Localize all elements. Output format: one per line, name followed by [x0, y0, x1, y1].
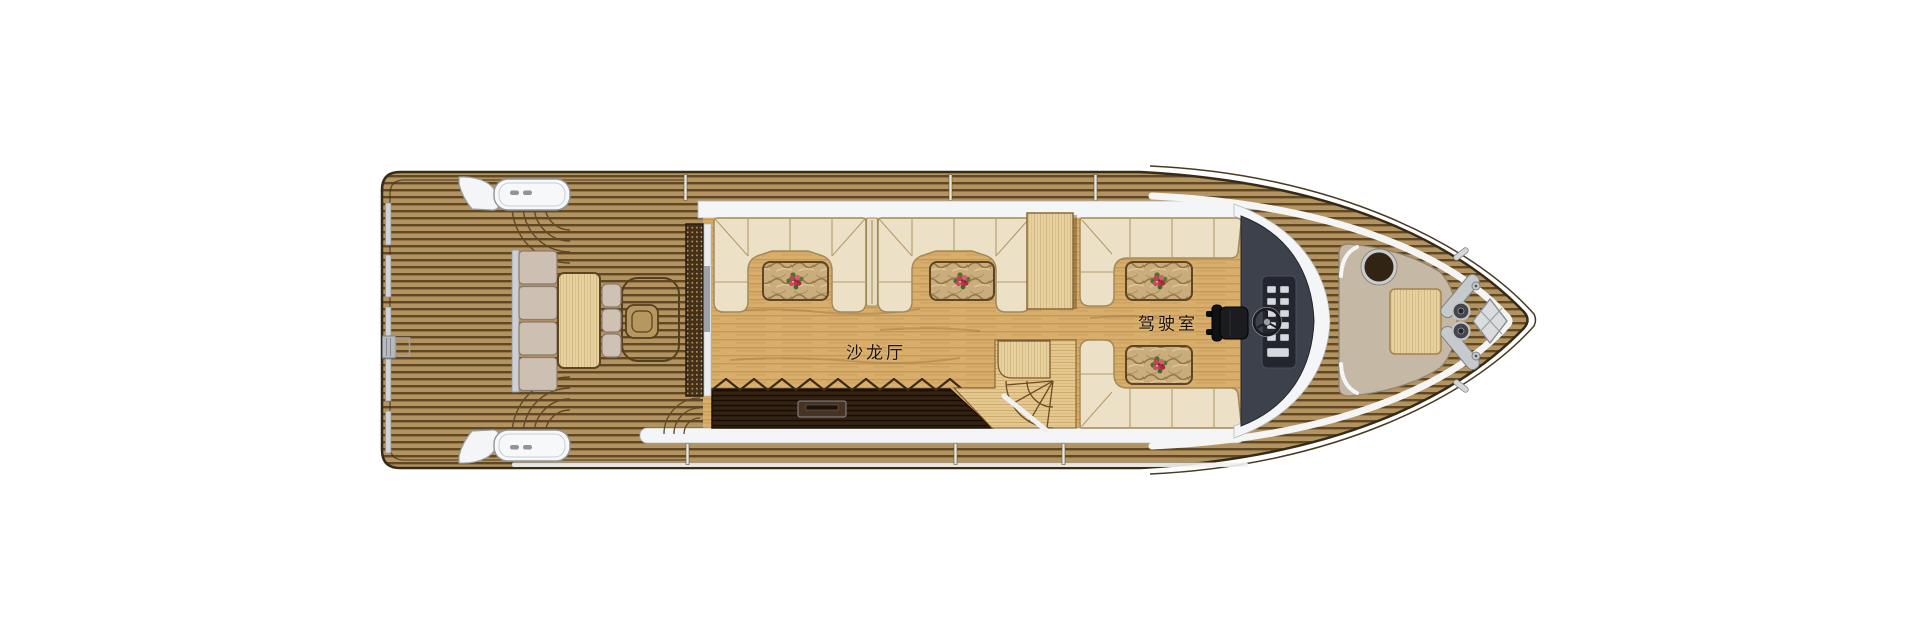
salon-bar-cabinet [712, 389, 992, 428]
salon-booth-divider [867, 218, 878, 306]
captain-chair [1206, 305, 1248, 341]
cabin-bottom-band [640, 428, 1244, 443]
bow-hatch-round [1361, 249, 1397, 285]
bow-table-pad [1390, 289, 1441, 354]
helm-table-top [1126, 262, 1192, 300]
bench-chrome-rail [512, 250, 519, 392]
salon-table-starboard [930, 262, 994, 300]
yacht-deck-plan: 沙龙厅 驾驶室 [0, 0, 1920, 620]
boarding-gate-top [459, 177, 570, 210]
hull-bottom-joint-line [512, 463, 1248, 468]
helm-table-bottom [1126, 346, 1192, 384]
door-frame-panel [704, 266, 710, 332]
aft-stools [602, 284, 621, 357]
stair-landing [998, 341, 1050, 378]
bow-deck [1339, 244, 1507, 396]
label-wheelhouse: 驾驶室 [1138, 310, 1198, 335]
deck-side-table [626, 305, 658, 338]
boarding-gate-bottom [459, 430, 570, 463]
cabin-top-band [698, 201, 1244, 218]
label-salon-hall: 沙龙厅 [846, 339, 906, 364]
bar-handle [806, 405, 838, 410]
deck-plan-canvas [0, 0, 1920, 620]
partition-cabinet [1027, 213, 1073, 309]
aft-dining-table [558, 273, 600, 368]
salon-sliding-door [686, 224, 703, 396]
transom-ladder-segments [386, 203, 392, 453]
salon-table-port [763, 262, 828, 300]
